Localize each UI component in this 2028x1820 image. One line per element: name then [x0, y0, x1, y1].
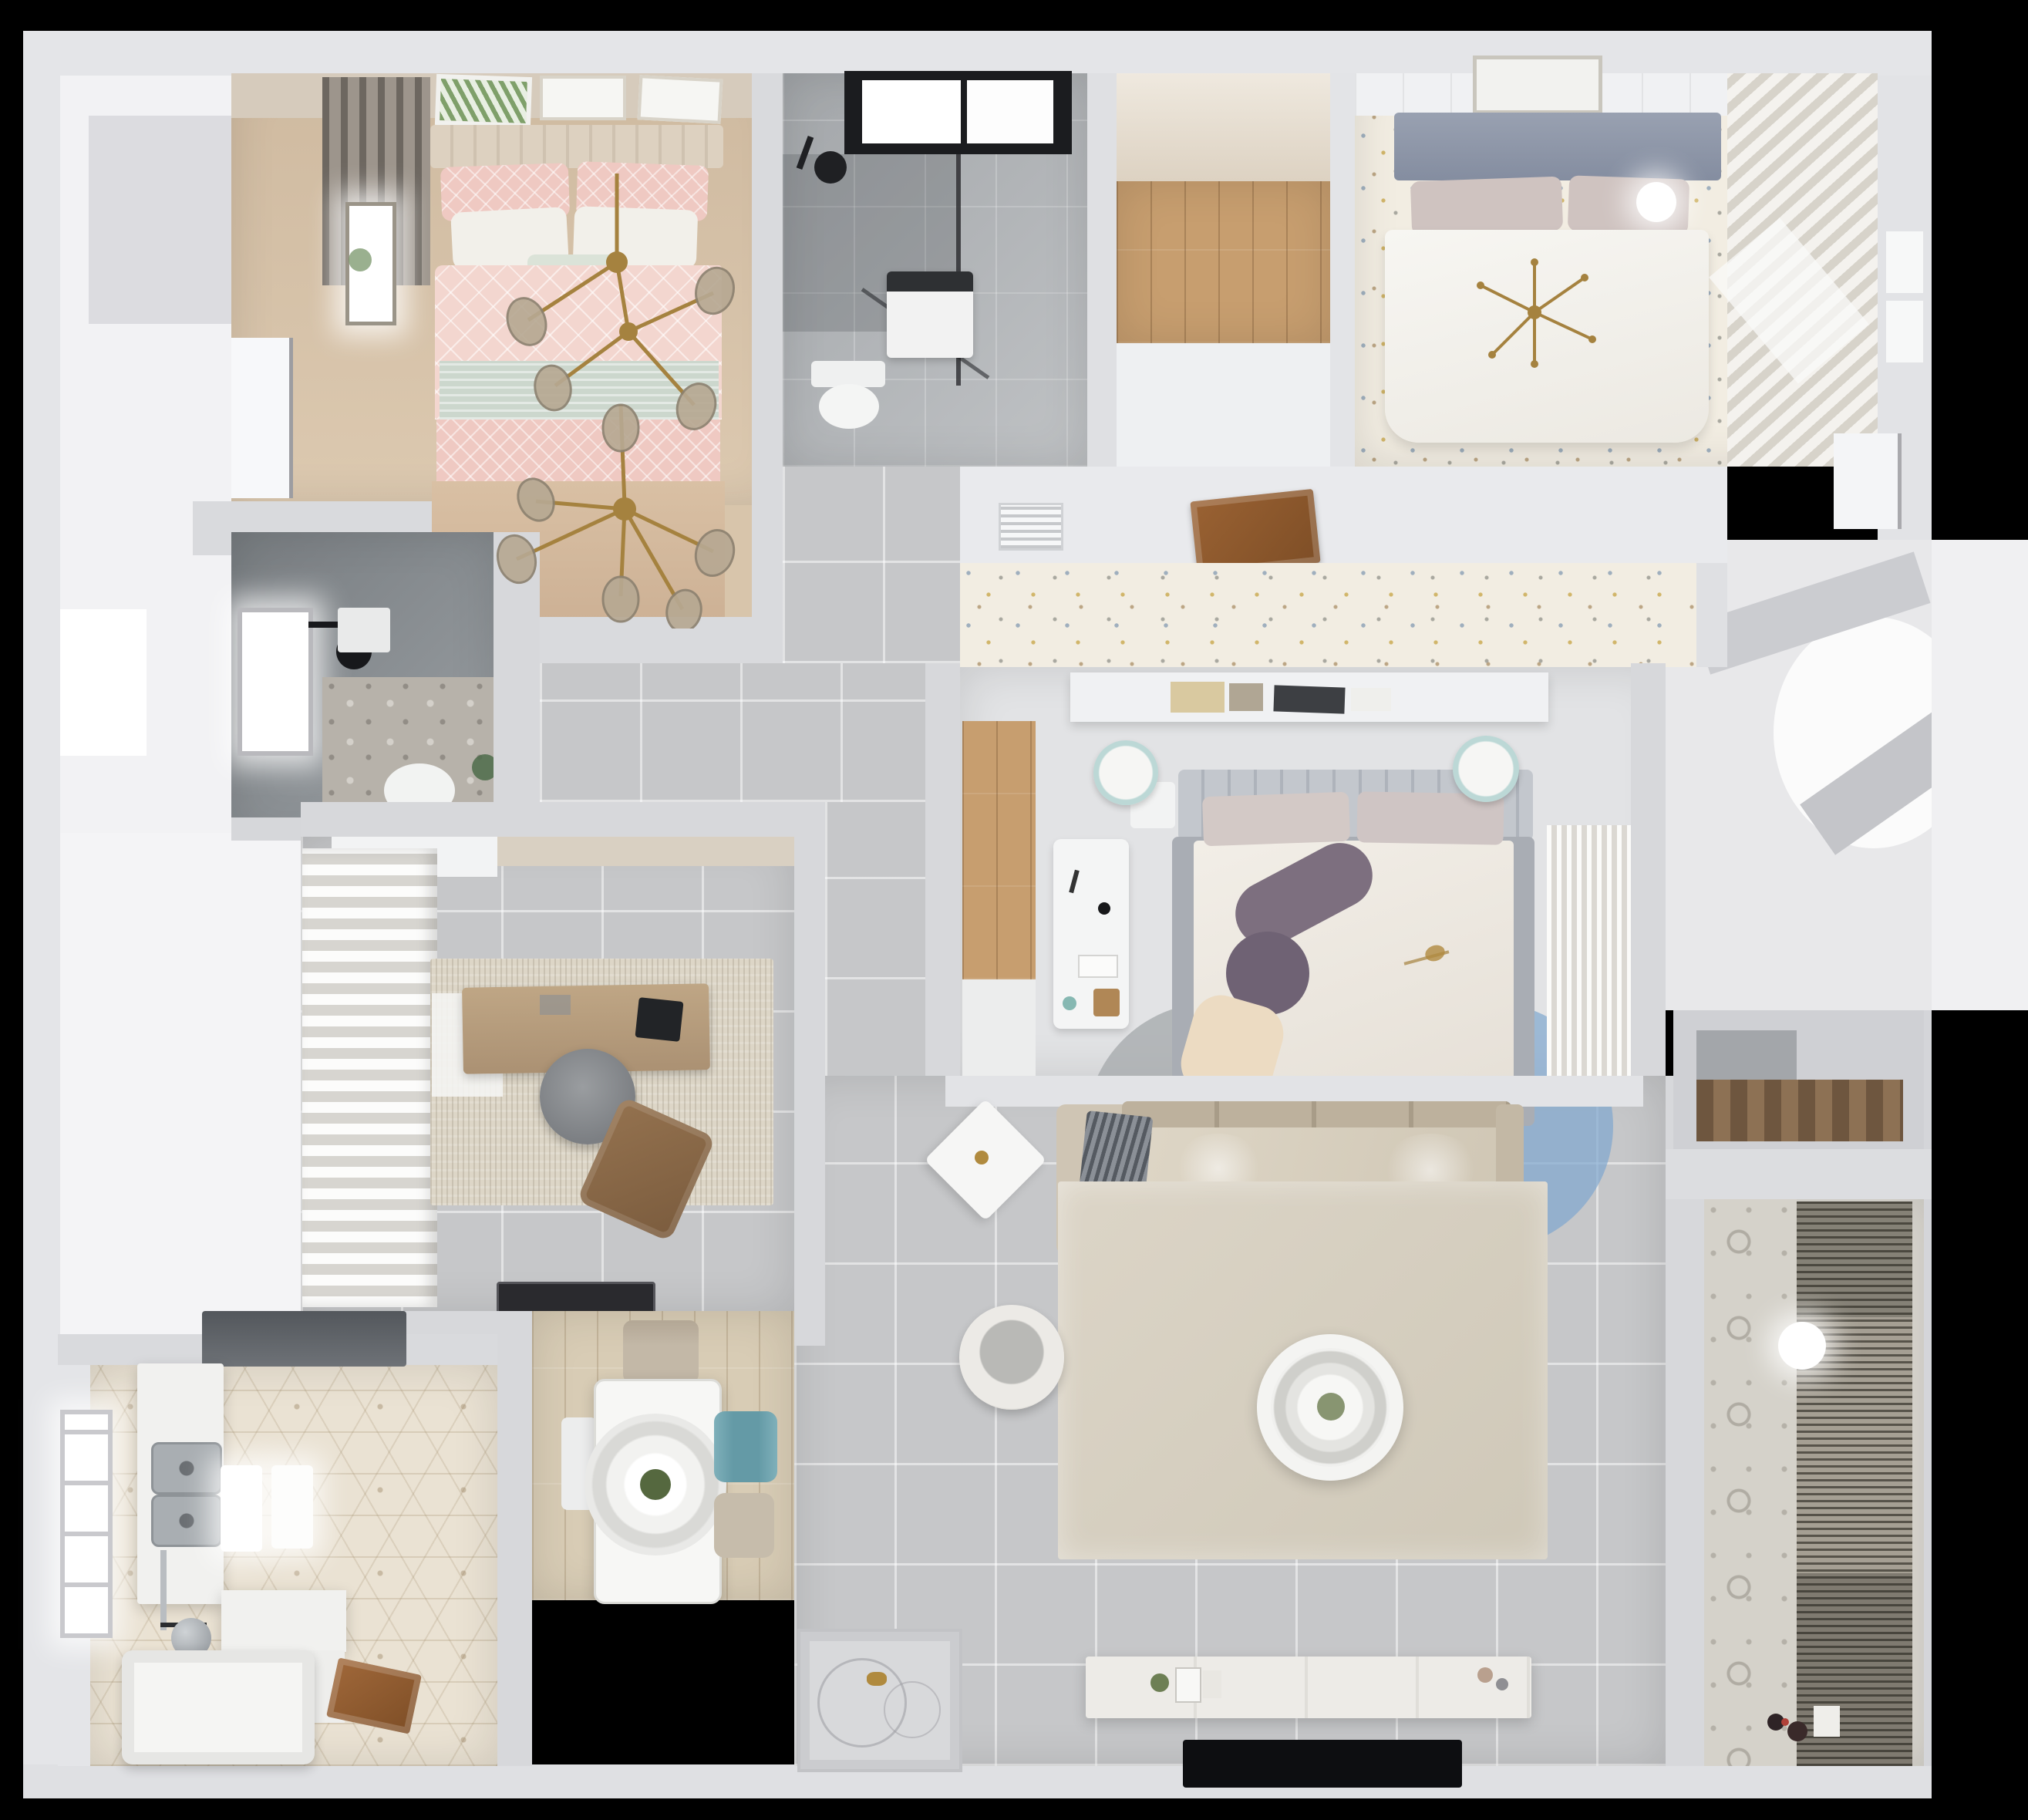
wall-window-frame-2 — [1886, 301, 1923, 362]
living-sofa-back-cushions — [1122, 1101, 1511, 1129]
bathroom1-right-wall — [1087, 73, 1117, 514]
bedroom3-shelf-book-2 — [1229, 683, 1263, 711]
wall-window-frame-1 — [1886, 231, 1923, 293]
bathroom3-glow-panel-1 — [221, 1465, 262, 1552]
balcony-toy-box — [1814, 1706, 1840, 1737]
bedroom3-left-wall — [925, 663, 960, 1076]
bedroom3-shelf-tablet — [1273, 685, 1345, 713]
closet-wood-floor — [1117, 181, 1330, 343]
bedroom3-shelf-book-1 — [1171, 682, 1225, 713]
bedroom3-stool-right — [1453, 736, 1519, 802]
corridor-ac-vent — [999, 503, 1063, 551]
bedroom1-frame-print-2 — [638, 75, 723, 124]
bedroom1-door-open — [231, 338, 293, 498]
bathroom3-sink-2 — [151, 1495, 222, 1547]
bedroom2-gold-sprig-icon — [1469, 254, 1600, 378]
bathroom3-window — [60, 1410, 113, 1638]
balcony-blinds-shade-bottom — [1797, 1573, 1912, 1766]
bedroom2-pillow-left — [1410, 177, 1563, 236]
living-console-pot-1 — [1477, 1667, 1493, 1683]
bathroom1-shower-head — [814, 151, 847, 184]
living-console-plant — [1150, 1673, 1169, 1692]
study-wall-beige — [497, 837, 794, 866]
living-console-frame-1 — [1175, 1667, 1201, 1703]
study-desk-tray — [540, 995, 571, 1015]
hall-junction-floor — [783, 467, 960, 663]
bathroom3-tub-filler — [160, 1550, 167, 1630]
living-armchair — [959, 1305, 1064, 1410]
living-console-pot-2 — [1496, 1678, 1508, 1690]
bedroom3-desk-mouse — [1098, 902, 1110, 915]
study-curtain — [302, 848, 437, 1307]
closet-wall-glow — [1117, 73, 1330, 181]
living-coffee-table-plant — [1317, 1393, 1345, 1421]
exterior-right-protrusion — [1932, 540, 2028, 1010]
bedroom3-nook-wood — [962, 721, 1036, 979]
bathroom1-toilet-tank — [811, 361, 885, 387]
bedroom3-stool-left — [1093, 740, 1158, 805]
bathroom3-bench — [221, 1590, 346, 1652]
dining-centerpiece-plant — [640, 1469, 671, 1500]
closet-right-wall — [1330, 73, 1355, 514]
wall-left — [23, 31, 60, 1797]
bedroom3-desk-keyboard — [1078, 955, 1118, 978]
bathroom1-toilet-bowl — [819, 384, 879, 429]
corridor-east-wall — [1696, 563, 1727, 667]
living-console-frame-2 — [1203, 1670, 1221, 1698]
niche-steel-panel — [1696, 1030, 1797, 1081]
dining-chair-teal — [714, 1411, 777, 1482]
balcony-blinds-shade-top — [1797, 1202, 1912, 1317]
exterior-left-balcony — [58, 833, 301, 1334]
bathroom3-glow-panel-2 — [271, 1465, 313, 1549]
bathroom2-cistern-panel — [338, 608, 390, 652]
bathroom2-window — [237, 608, 313, 756]
bedroom3-wardrobe-clothes — [1547, 825, 1632, 1080]
bathroom3-sink-1 — [151, 1442, 222, 1495]
dining-chair-head — [623, 1320, 699, 1384]
bedroom2-headboard — [1394, 113, 1721, 180]
niche-wood-counter — [1696, 1080, 1903, 1141]
bedroom2-picture-frame — [1473, 56, 1602, 114]
corridor-speckle-floor — [960, 563, 1696, 667]
entry-medallion-ring-2 — [884, 1681, 941, 1738]
bathroom1-skylight-pane-2 — [967, 80, 1053, 143]
study-right-wall — [794, 802, 825, 1346]
bathroom1-washer-panel — [887, 271, 973, 292]
balcony-top-wall — [1666, 1149, 1932, 1199]
bedroom1-frame-botanical — [435, 74, 532, 128]
bedroom3-desk-cup — [1063, 996, 1076, 1010]
study-top-wall — [301, 802, 825, 837]
bedroom3-pillow-left — [1202, 792, 1350, 847]
bedroom1-window-plant — [349, 248, 372, 271]
entry-medallion-gold — [867, 1672, 887, 1686]
bedroom1-chandelier-icon — [428, 174, 736, 629]
bedroom3-shelf-book-3 — [1351, 688, 1391, 711]
bedroom3-right-wall — [1631, 663, 1666, 1076]
bedroom2-sphere-lamp — [1636, 182, 1676, 222]
balcony-tile-wall — [1704, 1199, 1797, 1766]
balcony-ceiling-light — [1778, 1322, 1826, 1370]
bedroom1-headboard — [430, 125, 723, 168]
bedroom1-frame-print-1 — [540, 76, 626, 120]
wall-bottom — [23, 1764, 1932, 1798]
bathroom1-skylight-pane-1 — [862, 80, 961, 143]
bedroom3-nook-pillar — [962, 979, 1036, 1076]
hall-upper-band-floor — [540, 663, 956, 802]
bathroom3-range-hood — [202, 1311, 406, 1367]
kitchen-right-wall — [494, 1334, 532, 1766]
living-tv-panel — [1183, 1740, 1462, 1788]
balcony-toy-red — [1781, 1718, 1789, 1726]
bedroom1-right-wall — [752, 73, 783, 663]
bedroom2-door — [1834, 433, 1902, 529]
corridor-wall-slab — [960, 467, 1727, 563]
bedroom3-desk-organizer — [1093, 989, 1120, 1016]
bathroom3-bathtub — [122, 1650, 315, 1764]
study-monitor — [635, 997, 683, 1042]
balcony-toy-2 — [1787, 1721, 1807, 1741]
floorplan-render — [0, 0, 2028, 1820]
living-side-table-decor — [975, 1151, 989, 1164]
wall-top — [23, 31, 1932, 76]
dining-chair-beige — [714, 1493, 774, 1558]
